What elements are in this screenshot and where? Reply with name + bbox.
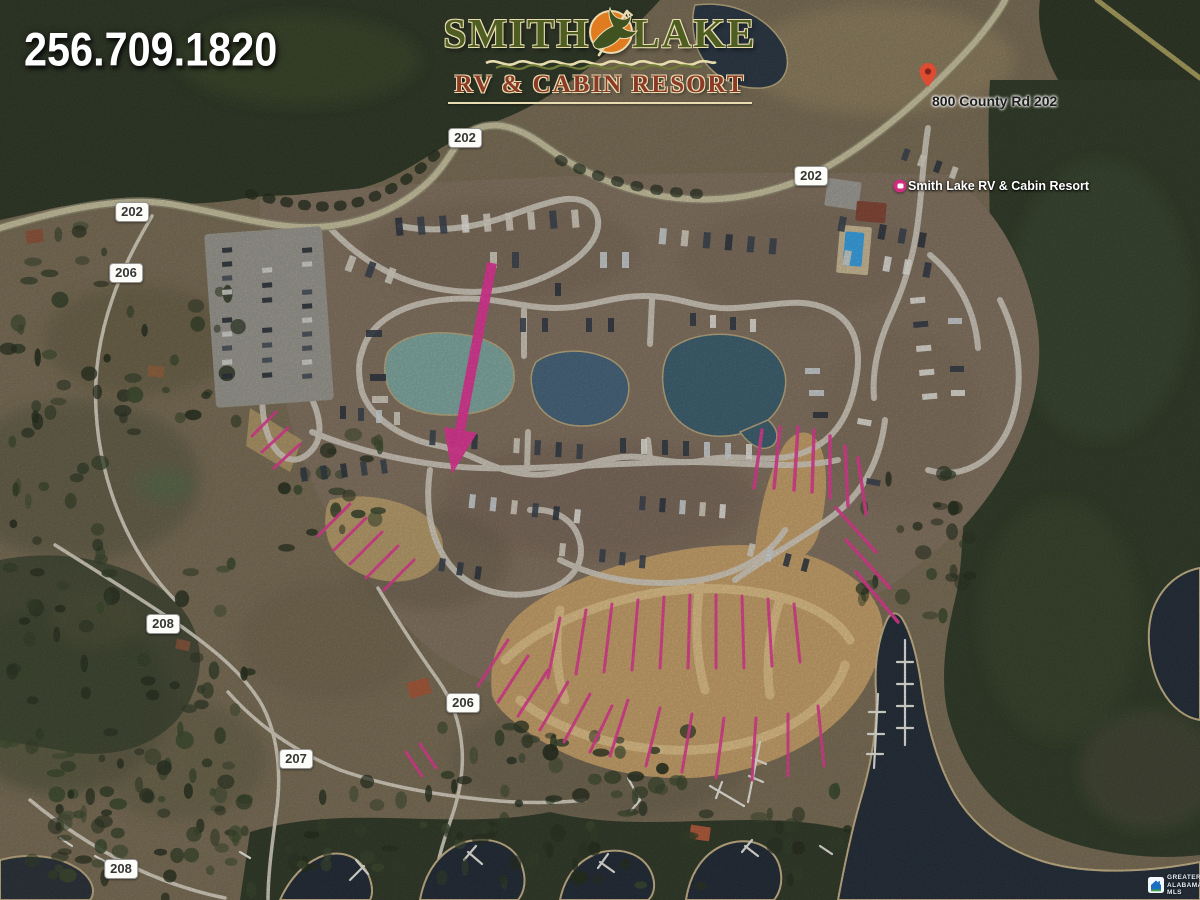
duck-logo-icon (583, 5, 639, 61)
road-badge-208-4: 208 (146, 614, 180, 634)
road-badge-206-5: 206 (446, 693, 480, 713)
satellite-map (0, 0, 1200, 900)
logo-word-lake: LAKE (632, 9, 756, 57)
mls-house-icon (1148, 877, 1164, 893)
resort-label: Smith Lake RV & Cabin Resort (908, 179, 1089, 193)
resort-logo: SMITH LAKE RV & CABIN RESORT (448, 2, 752, 104)
address-label: 800 County Rd 202 (932, 93, 1057, 109)
road-badge-206-2: 206 (109, 263, 143, 283)
grain-light (0, 0, 1200, 900)
logo-subtitle: RV & CABIN RESORT (448, 71, 752, 99)
road-badge-202-1: 202 (115, 202, 149, 222)
road-badge-207-6: 207 (279, 749, 313, 769)
logo-word-smith: SMITH (444, 9, 591, 57)
address-pin-icon (920, 63, 937, 92)
mls-line2: ALABAMA (1167, 882, 1200, 890)
logo-title: SMITH LAKE (448, 2, 752, 64)
mls-logo: GREATER ALABAMA MLS (1148, 874, 1200, 897)
phone-number: 256.709.1820 (24, 22, 277, 77)
road-badge-202-0: 202 (448, 128, 482, 148)
mls-line1: GREATER (1167, 874, 1200, 882)
property-aerial-photo: 256.709.1820 SMITH LAKE RV & CABIN RESOR… (0, 0, 1200, 900)
road-badge-202-3: 202 (794, 166, 828, 186)
lodging-poi-icon (894, 180, 907, 193)
mls-line3: MLS (1167, 889, 1200, 897)
logo-underline (448, 102, 752, 104)
road-badge-208-7: 208 (104, 859, 138, 879)
